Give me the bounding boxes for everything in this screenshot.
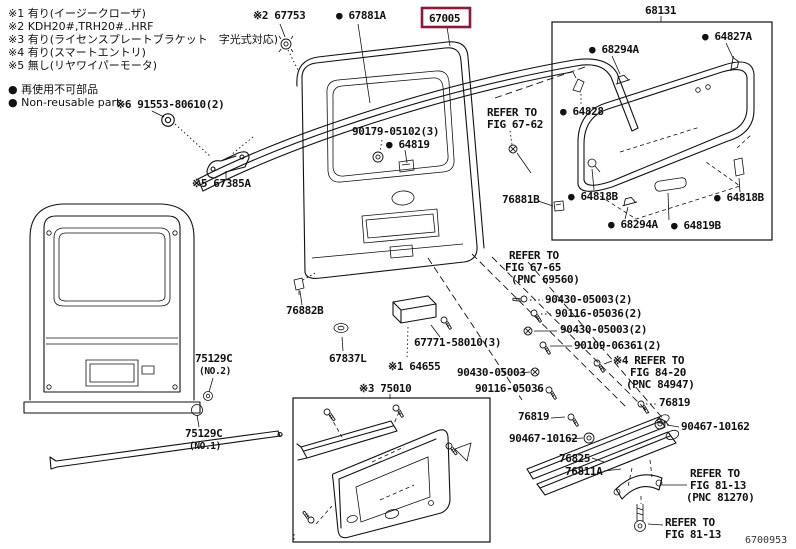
glass-detail-circles	[696, 85, 711, 93]
part-label-64828[interactable]: ● 64828	[560, 105, 604, 118]
legend-note-1: ※1 有り(イージークローザ)	[8, 6, 146, 20]
part-label-68294a-bottom[interactable]: ● 68294A	[608, 218, 659, 231]
box-corner-dots	[294, 534, 301, 542]
screw-90430c-icon	[531, 368, 539, 376]
strip-end-caps	[658, 415, 679, 440]
figure-code: 6700953	[745, 535, 787, 546]
part-label-76825[interactable]: 76825	[559, 452, 590, 465]
part-label-67385a[interactable]: ※5 67385A	[192, 177, 251, 190]
legend-note-5: ※5 無し(リヤワイパーモータ)	[8, 58, 157, 72]
bracket-64828-icon	[573, 72, 584, 92]
leader-lines-solid	[152, 16, 740, 525]
door-inner-details	[312, 191, 463, 258]
part-label-75129c-no1[interactable]: 75129C	[185, 427, 222, 440]
clip-68294a-top-icon	[614, 74, 630, 84]
legend-note-4: ※4 有り(スマートエントリ)	[8, 45, 146, 59]
part-label-67881a[interactable]: ● 67881A	[336, 9, 387, 22]
part-labels: ※2 67753 ● 67881A 67005 68131 ● 68294A ●…	[116, 4, 787, 546]
refer-fig8113pnc-line3[interactable]: (PNC 81270)	[686, 491, 754, 504]
clip-90467-left-icon	[584, 433, 594, 443]
box-68131-border	[552, 22, 772, 240]
garnish-recess	[347, 443, 471, 523]
van-window-and-details	[46, 228, 178, 389]
van-rear-view	[24, 204, 213, 416]
part-label-90430-2-a[interactable]: 90430-05003(2)	[545, 293, 632, 306]
garnish-clip-screw-icon	[444, 442, 460, 455]
garnish-screw-icon	[300, 511, 316, 524]
screw-fig8420-icon	[592, 359, 608, 373]
strip-64819b-icon	[655, 178, 686, 191]
rear-wiper-blade	[50, 431, 282, 469]
bolt-90109-icon	[538, 341, 554, 355]
part-label-90116-2[interactable]: 90116-05036(2)	[555, 307, 642, 320]
grommet-67753-icon	[279, 36, 293, 52]
refer-fig6762-line2[interactable]: FIG 67-62	[487, 118, 543, 131]
refer-fig8420-line3[interactable]: (PNC 84947)	[626, 378, 694, 391]
part-label-90430-2-b[interactable]: 90430-05003(2)	[560, 323, 647, 336]
part-label-67771[interactable]: 67771-58010(3)	[414, 336, 501, 349]
back-door-parts-diagram: ※1 有り(イージークローザ) ※2 KDH20#,TRH20#..HRF ※3…	[0, 0, 796, 549]
window-assembly-box	[552, 22, 772, 240]
clip-64818b-right-icon	[734, 158, 744, 176]
part-label-90467-right[interactable]: 90467-10162	[681, 420, 749, 433]
legend-nonreusable-en: ● Non-reusable part	[8, 96, 121, 109]
part-label-64818b-left[interactable]: ● 64818B	[568, 190, 619, 203]
part-label-75129c-no1-sub: (NO.1)	[189, 441, 221, 452]
clip-67837l-icon	[334, 324, 348, 333]
part-label-76819-right[interactable]: 76819	[659, 396, 690, 409]
part-label-64819b[interactable]: ● 64819B	[671, 219, 722, 232]
license-lamp-bracket	[616, 475, 662, 499]
part-label-90467-left[interactable]: 90467-10162	[509, 432, 577, 445]
screw-76819-right-icon	[636, 400, 652, 414]
garnish-screw-icon	[391, 404, 407, 418]
legend-nonreusable-jp: ● 再使用不可部品	[8, 82, 98, 96]
part-label-76811a[interactable]: 76811A	[565, 465, 603, 478]
refer-fig6765-line3[interactable]: (PNC 69560)	[511, 273, 579, 286]
garnish-panel	[333, 430, 451, 538]
screw-90430a-icon	[512, 294, 528, 306]
legend-note-2: ※2 KDH20#,TRH20#..HRF	[8, 20, 153, 33]
part-label-64819[interactable]: ● 64819	[386, 138, 430, 151]
screw-fig6762-icon	[509, 145, 517, 153]
clip-76882b-icon	[294, 278, 304, 295]
garnish-screw-icon	[322, 408, 338, 421]
hook-64818b-left-icon	[588, 159, 600, 172]
refer-fig8113-line2[interactable]: FIG 81-13	[665, 528, 721, 541]
parts-diagram-page: ※1 有り(イージークローザ) ※2 KDH20#,TRH20#..HRF ※3…	[0, 0, 796, 549]
legend-notes: ※1 有り(イージークローザ) ※2 KDH20#,TRH20#..HRF ※3…	[8, 6, 278, 109]
screw-90116b-icon	[544, 386, 560, 400]
garnish-box	[293, 398, 490, 542]
part-label-75010[interactable]: ※3 75010	[359, 382, 411, 395]
part-label-90109[interactable]: 90109-06361(2)	[574, 339, 661, 352]
screw-67771-icon	[439, 316, 455, 330]
plug-76881b-icon	[554, 201, 564, 211]
screw-76819-center-icon	[566, 413, 582, 427]
bracket-dashed	[628, 460, 652, 504]
part-label-90179[interactable]: 90179-05102(3)	[352, 125, 439, 138]
back-door-glass	[578, 62, 754, 191]
part-label-64818b-right[interactable]: ● 64818B	[714, 191, 765, 204]
part-label-64655[interactable]: ※1 64655	[388, 360, 440, 373]
screw-90116a-icon	[529, 309, 545, 323]
part-label-67005[interactable]: 67005	[429, 12, 460, 25]
bolt-fig8113-icon	[635, 504, 646, 532]
box-75010-border	[293, 398, 490, 542]
plug-75129c-no2	[204, 392, 213, 401]
part-label-75129c-no2[interactable]: 75129C	[195, 352, 232, 365]
part-label-64827a[interactable]: ● 64827A	[702, 30, 753, 43]
part-label-76881b[interactable]: 76881B	[502, 193, 540, 206]
screw-90430b-icon	[524, 327, 532, 335]
part-label-67753[interactable]: ※2 67753	[253, 9, 305, 22]
part-label-75129c-no2-sub: (NO.2)	[199, 366, 231, 377]
part-label-76819-center[interactable]: 76819	[518, 410, 549, 423]
back-door-inner-panel	[297, 42, 484, 279]
legend-note-3: ※3 有り(ライセンスプレートブラケット 字光式対応)	[8, 32, 278, 46]
nut-90179-icon	[373, 152, 383, 162]
part-label-67837l[interactable]: 67837L	[329, 352, 367, 365]
door-stop-64655-icon	[393, 296, 436, 323]
clip-68294a-bottom-icon	[621, 196, 637, 206]
nut-91553-icon	[162, 114, 175, 127]
part-label-91553[interactable]: ※6 91553-80610(2)	[116, 98, 224, 111]
part-label-90116[interactable]: 90116-05036	[475, 382, 544, 395]
door-outline	[297, 42, 484, 279]
plug-75129c-no1	[192, 405, 203, 416]
part-label-90430[interactable]: 90430-05003	[457, 366, 525, 379]
part-label-68294a-top[interactable]: ● 68294A	[589, 43, 640, 56]
part-label-68131[interactable]: 68131	[645, 4, 677, 17]
part-label-76882b[interactable]: 76882B	[286, 304, 324, 317]
